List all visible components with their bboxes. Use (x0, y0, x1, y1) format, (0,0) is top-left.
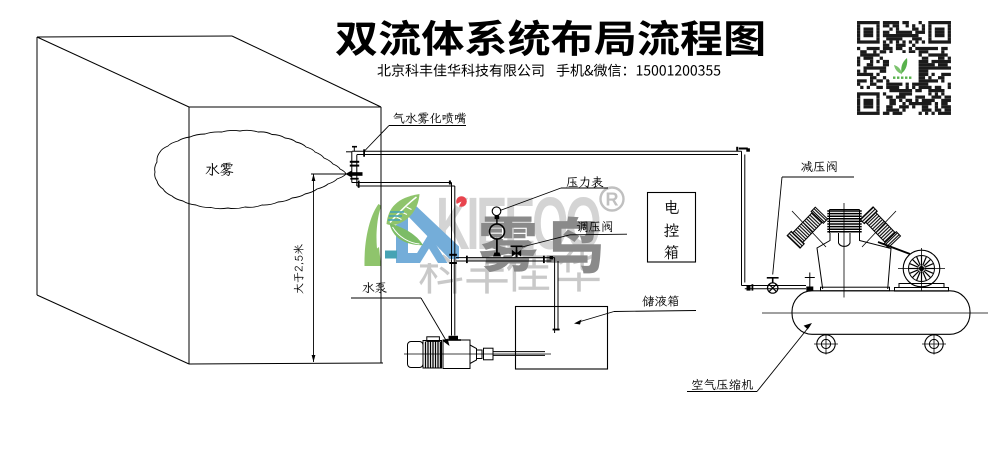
svg-text:R: R (606, 190, 619, 210)
